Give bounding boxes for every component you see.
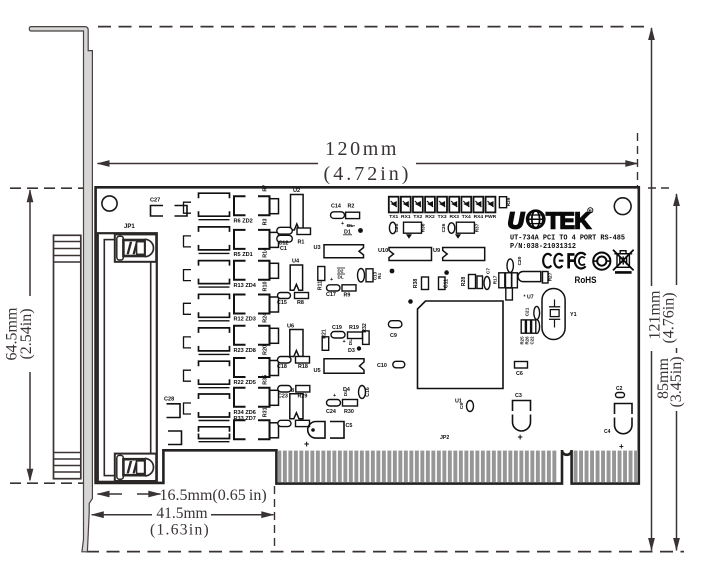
svg-text:C24: C24: [326, 409, 336, 415]
svg-text:+: +: [304, 439, 309, 449]
svg-text:R3: R3: [263, 218, 269, 225]
svg-text:R1: R1: [298, 240, 305, 246]
svg-text:R18: R18: [298, 364, 308, 370]
svg-text:Y1: Y1: [570, 312, 577, 318]
svg-text:R14: R14: [263, 248, 269, 258]
svg-text:U: U: [508, 208, 526, 234]
svg-text:+: +: [341, 221, 344, 227]
svg-text:DL: DL: [338, 275, 344, 280]
svg-text:(4.76in): (4.76in): [661, 292, 678, 343]
svg-text:C25: C25: [394, 223, 400, 232]
svg-text:R12 ZD3: R12 ZD3: [234, 317, 256, 323]
svg-text:R19: R19: [349, 325, 359, 331]
svg-text:RoHS: RoHS: [575, 275, 597, 285]
svg-text:+: +: [330, 277, 333, 283]
svg-text:C10: C10: [377, 363, 387, 369]
svg-text:R7: R7: [263, 185, 269, 192]
svg-text:D3: D3: [348, 348, 355, 354]
svg-text:UT-734A PCI TO 4 PORT RS-485: UT-734A PCI TO 4 PORT RS-485: [510, 235, 625, 243]
svg-text:U9: U9: [433, 248, 440, 254]
svg-text:R31: R31: [263, 407, 269, 417]
svg-text:C9: C9: [390, 333, 397, 339]
svg-text:C28: C28: [164, 397, 174, 403]
svg-text:R2: R2: [348, 204, 355, 210]
svg-text:C3: C3: [515, 393, 522, 399]
svg-text:U5: U5: [314, 368, 321, 374]
svg-text:JP1: JP1: [124, 224, 135, 230]
svg-text:R28: R28: [461, 277, 467, 287]
svg-text:U4: U4: [292, 259, 300, 265]
svg-text:(1.63in): (1.63in): [150, 522, 210, 539]
svg-text:C19: C19: [332, 325, 342, 331]
svg-text:RX2: RX2: [425, 214, 435, 220]
svg-text:R6 ZD2: R6 ZD2: [234, 218, 253, 224]
svg-text:R33 ZD7: R33 ZD7: [234, 416, 256, 422]
svg-text:C16: C16: [365, 387, 371, 397]
svg-text:* U7: * U7: [524, 295, 534, 301]
svg-text:RX1: RX1: [401, 214, 411, 220]
svg-text:R17: R17: [493, 275, 499, 284]
svg-text:R9: R9: [344, 293, 351, 299]
svg-text:R10: R10: [263, 282, 269, 292]
svg-text:C14: C14: [331, 204, 341, 210]
svg-text:C27: C27: [150, 198, 160, 204]
svg-text:R39: R39: [506, 197, 512, 206]
svg-text:R27: R27: [548, 272, 554, 281]
svg-text:R22 ZD5: R22 ZD5: [234, 380, 256, 386]
svg-text:R29: R29: [298, 394, 308, 400]
svg-text:R24: R24: [263, 313, 269, 323]
svg-text:PWR: PWR: [485, 214, 497, 220]
svg-text:R36: R36: [421, 223, 427, 232]
svg-text:RX4: RX4: [474, 214, 484, 220]
svg-text:R5 ZD1: R5 ZD1: [234, 252, 253, 258]
svg-text:TX4: TX4: [462, 214, 471, 220]
svg-text:C20: C20: [517, 256, 523, 265]
svg-text:R11: R11: [317, 281, 323, 290]
svg-text:(4.72in): (4.72in): [324, 163, 412, 185]
svg-text:C1: C1: [280, 246, 287, 252]
svg-text:DL: DL: [348, 339, 354, 345]
svg-text:R8: R8: [297, 300, 304, 306]
svg-text:TX2: TX2: [413, 214, 422, 220]
svg-text:U10: U10: [378, 248, 388, 254]
svg-text:R20: R20: [263, 345, 269, 355]
svg-text:U2: U2: [293, 188, 300, 194]
svg-text:TX3: TX3: [438, 214, 447, 220]
svg-text:C8: C8: [459, 403, 465, 409]
svg-text:+: +: [518, 432, 523, 442]
svg-text:JP2: JP2: [440, 435, 449, 441]
svg-text:D4: D4: [343, 387, 350, 393]
svg-text:C23: C23: [278, 394, 288, 400]
svg-text:120mm: 120mm: [325, 138, 399, 160]
svg-text:C22: C22: [530, 336, 535, 345]
svg-text:R30: R30: [344, 409, 354, 415]
svg-text:R21: R21: [322, 329, 328, 339]
svg-text:U6: U6: [287, 324, 294, 330]
svg-text:C6: C6: [516, 371, 523, 377]
svg-text:R13 ZD4: R13 ZD4: [234, 283, 257, 289]
svg-text:C2: C2: [616, 386, 623, 392]
svg-text:+: +: [619, 442, 624, 451]
svg-text:R35: R35: [263, 375, 269, 385]
svg-text:U3: U3: [314, 245, 321, 251]
svg-text:(2.54in): (2.54in): [18, 308, 35, 359]
svg-text:TX1: TX1: [389, 214, 398, 220]
svg-text:C5: C5: [346, 423, 353, 429]
svg-text:P/N:038-21031312: P/N:038-21031312: [510, 243, 576, 251]
svg-text:+: +: [333, 393, 336, 399]
svg-text:16.5mm(0.65 in): 16.5mm(0.65 in): [160, 487, 267, 504]
svg-text:C26: C26: [441, 223, 447, 232]
svg-text:+: +: [343, 339, 346, 345]
svg-text:C17: C17: [326, 292, 336, 298]
svg-text:R37: R37: [475, 223, 481, 232]
svg-text:C11: C11: [444, 279, 450, 288]
svg-text:R38: R38: [413, 279, 419, 289]
svg-text:R32: R32: [362, 323, 368, 333]
svg-text:C4: C4: [604, 429, 611, 435]
svg-text:R4: R4: [377, 273, 382, 279]
svg-text:TEK: TEK: [546, 208, 591, 234]
svg-text:C18: C18: [277, 364, 287, 370]
svg-text:RX3: RX3: [449, 214, 459, 220]
svg-text:R: R: [589, 208, 592, 213]
svg-text:C15: C15: [277, 300, 287, 306]
svg-text:C21: C21: [525, 307, 531, 316]
svg-text:C7: C7: [486, 268, 492, 274]
svg-text:R23 ZD8: R23 ZD8: [234, 348, 256, 354]
svg-text:(3.45in): (3.45in): [668, 356, 685, 407]
svg-text:D2: D2: [338, 269, 344, 274]
svg-text:41.5mm: 41.5mm: [156, 505, 207, 522]
